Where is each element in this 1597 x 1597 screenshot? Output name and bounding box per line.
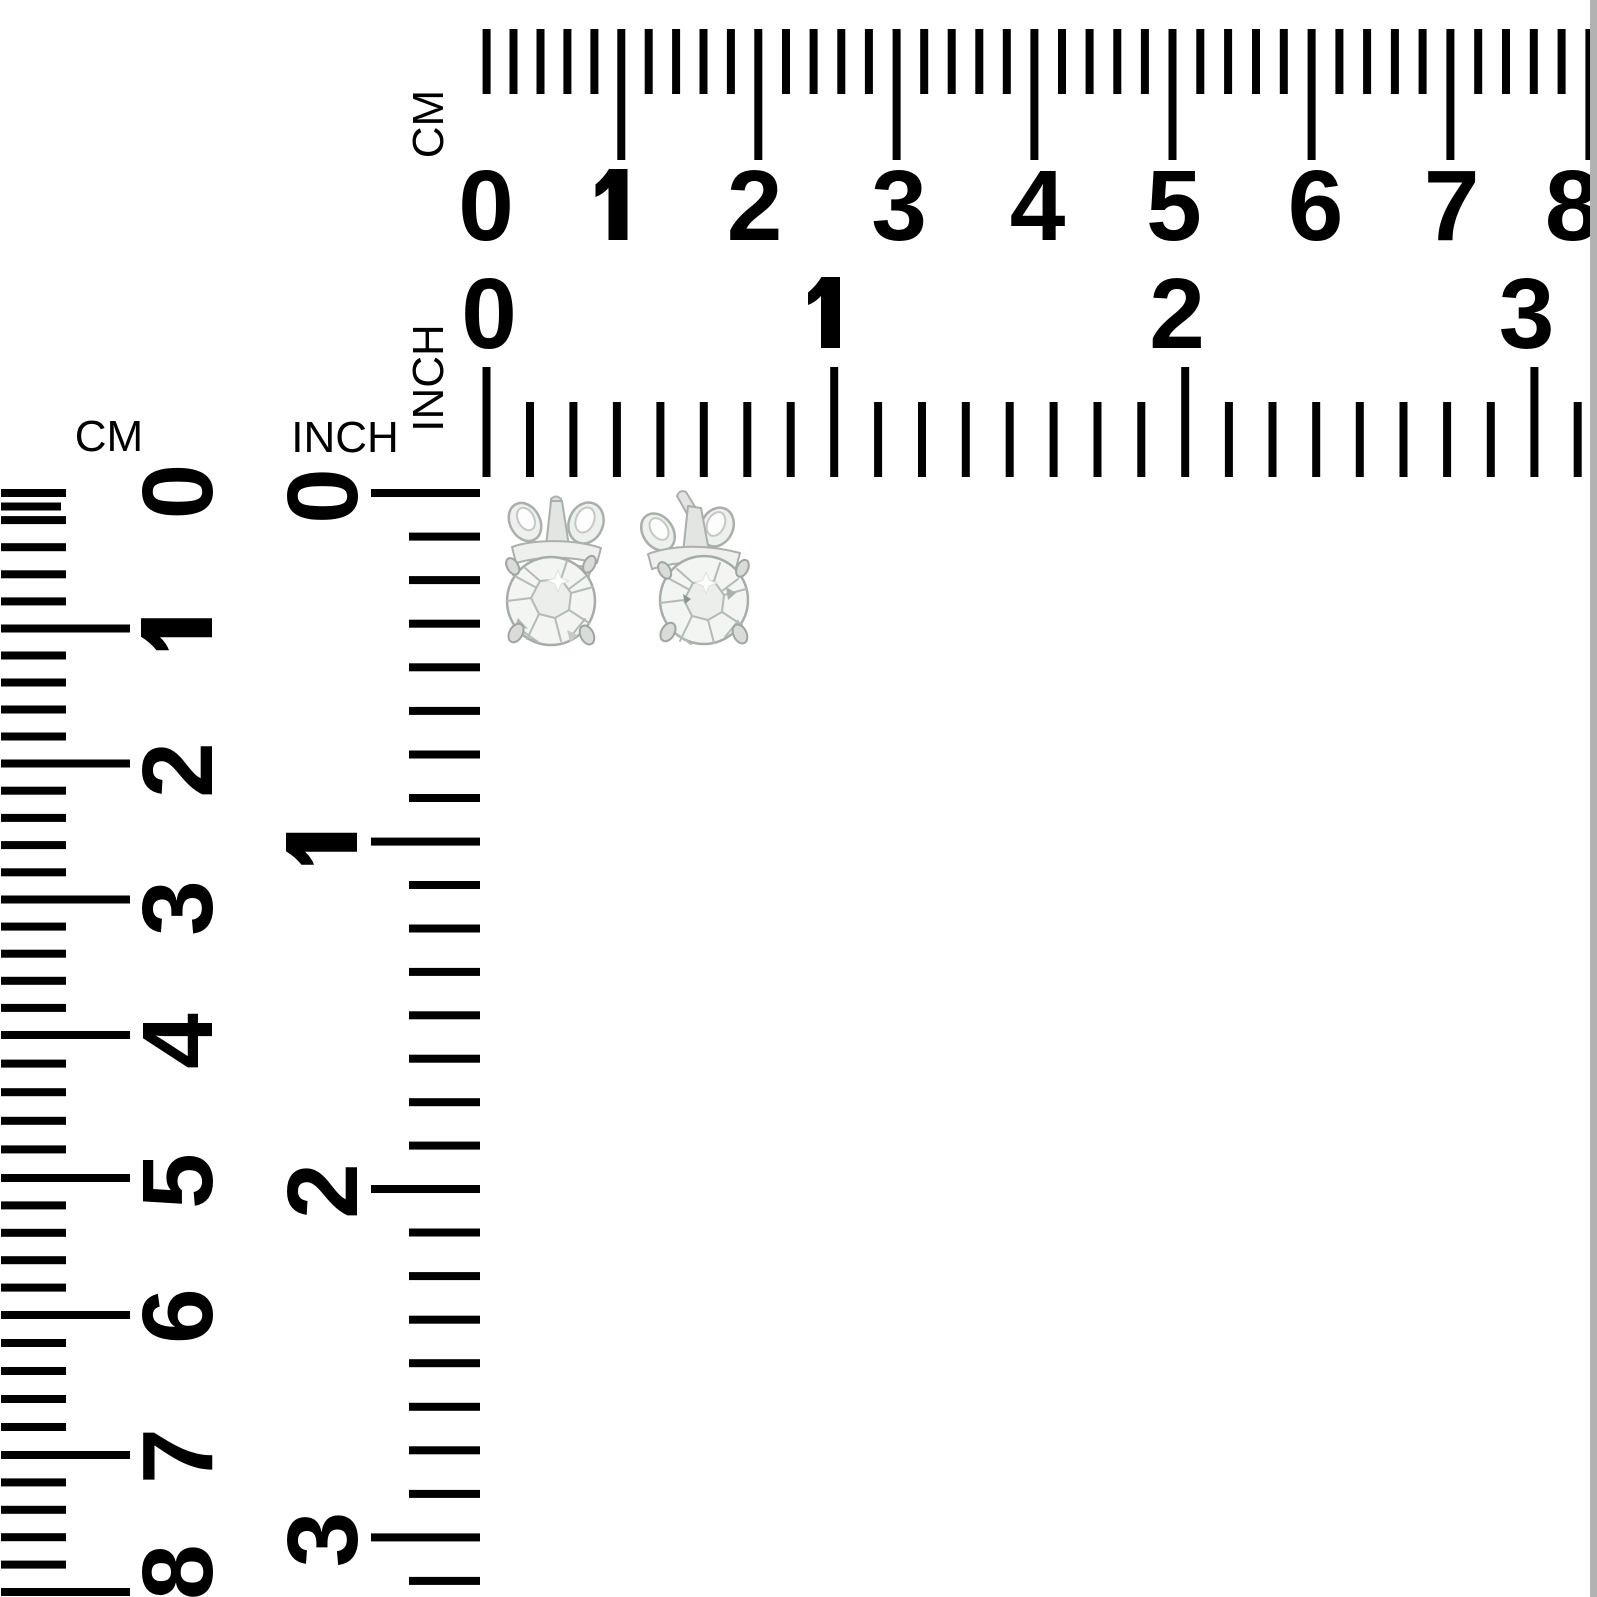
svg-text:6: 6 <box>1288 150 1344 262</box>
svg-text:2: 2 <box>267 1163 379 1219</box>
svg-text:4: 4 <box>122 1013 234 1069</box>
svg-text:4: 4 <box>1010 150 1066 262</box>
svg-text:0: 0 <box>458 150 514 262</box>
svg-text:2: 2 <box>122 742 234 798</box>
svg-text:3: 3 <box>122 880 234 936</box>
svg-text:CM: CM <box>75 412 143 461</box>
svg-text:0: 0 <box>461 258 517 370</box>
svg-text:0: 0 <box>267 468 379 524</box>
svg-text:0: 0 <box>122 464 234 520</box>
svg-text:5: 5 <box>122 1153 234 1209</box>
svg-text:8: 8 <box>122 1544 234 1597</box>
svg-text:INCH: INCH <box>291 413 399 462</box>
svg-text:3: 3 <box>1499 258 1555 370</box>
svg-text:8: 8 <box>1545 150 1597 262</box>
svg-text:3: 3 <box>267 1512 379 1568</box>
svg-text:INCH: INCH <box>404 324 453 432</box>
svg-text:2: 2 <box>727 150 783 262</box>
svg-text:2: 2 <box>1149 258 1205 370</box>
svg-text:CM: CM <box>404 90 453 158</box>
svg-text:6: 6 <box>122 1288 234 1344</box>
svg-text:7: 7 <box>122 1428 234 1484</box>
svg-text:5: 5 <box>1146 150 1202 262</box>
svg-text:7: 7 <box>1424 150 1480 262</box>
svg-text:3: 3 <box>871 150 927 262</box>
